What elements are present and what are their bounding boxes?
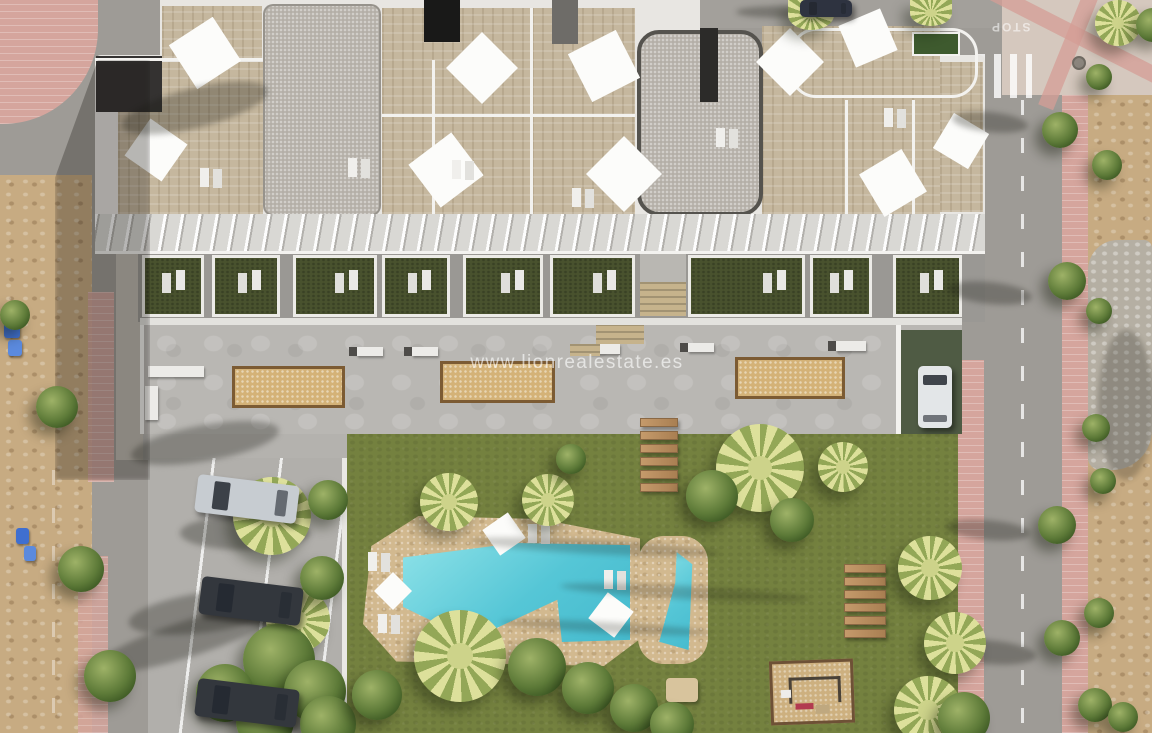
podium-edge	[140, 318, 962, 325]
recycling-bin	[8, 340, 22, 356]
palm-tree	[1095, 0, 1141, 46]
terrain-shadow	[1098, 330, 1152, 480]
wooden-step	[640, 483, 678, 492]
aerial-development-render: STOP	[0, 0, 1152, 733]
shrub	[36, 386, 78, 428]
stair-shaft-roof	[700, 28, 718, 102]
sun-lounger	[378, 614, 387, 633]
shrub	[1090, 468, 1116, 494]
bush	[770, 498, 814, 542]
gravel-roof	[263, 4, 381, 216]
bench	[688, 343, 714, 352]
road-center-line	[1021, 100, 1024, 733]
wooden-step	[640, 418, 678, 427]
shrub	[58, 546, 104, 592]
wooden-step	[640, 444, 678, 453]
bench	[836, 341, 866, 351]
bush	[562, 662, 614, 714]
palm-tree	[898, 536, 962, 600]
roof-railing	[382, 114, 635, 117]
play-table	[781, 690, 791, 698]
swing-frame	[788, 676, 840, 681]
palm-tree	[420, 473, 478, 531]
stair-shaft-roof	[424, 0, 460, 42]
watermark-text: www.lionrealestate.es	[417, 352, 737, 374]
sun-lounger	[716, 128, 725, 147]
private-garden-terrace	[142, 255, 204, 317]
stop-road-marking: STOP	[990, 20, 1030, 34]
shrub	[84, 650, 136, 702]
roof-railing	[845, 100, 848, 214]
bench	[357, 347, 383, 356]
palm-tree	[924, 612, 986, 674]
bush	[352, 670, 402, 720]
bush	[508, 638, 566, 696]
wooden-step	[640, 431, 678, 440]
play-box	[815, 704, 829, 713]
private-garden-terrace	[382, 255, 450, 317]
sun-lounger	[200, 168, 209, 187]
sand-planter	[232, 366, 345, 408]
bush	[686, 470, 738, 522]
recycling-bin	[24, 546, 36, 561]
terrace-steps	[640, 282, 686, 316]
manhole-cover	[1072, 56, 1086, 70]
private-garden-terrace	[212, 255, 280, 317]
private-garden-terrace	[688, 255, 805, 317]
stair-shaft-roof	[552, 0, 578, 44]
bench	[148, 366, 204, 377]
sun-lounger	[348, 158, 357, 177]
street-tree	[1044, 620, 1080, 656]
wooden-step	[844, 616, 886, 625]
shrub	[0, 300, 30, 330]
wooden-step	[844, 564, 886, 573]
palm-tree	[414, 610, 506, 702]
lane-line	[52, 470, 55, 733]
shrub	[1108, 702, 1138, 732]
wooden-step	[844, 577, 886, 586]
palm-tree	[818, 442, 868, 492]
sun-lounger	[572, 188, 581, 207]
crosswalk	[978, 54, 1032, 98]
bush	[308, 480, 348, 520]
shrub	[1086, 298, 1112, 324]
wooden-step	[844, 629, 886, 638]
private-garden-terrace	[293, 255, 377, 317]
wooden-step	[844, 590, 886, 599]
garden-pergola	[666, 678, 698, 702]
pergola-canopy-band	[95, 214, 985, 254]
shrub	[1082, 414, 1110, 442]
private-garden-terrace	[810, 255, 872, 317]
swing-frame	[837, 676, 841, 702]
playground	[769, 659, 855, 726]
shrub	[1092, 150, 1122, 180]
private-garden-terrace	[550, 255, 635, 317]
palm-tree	[522, 474, 574, 526]
wooden-step	[640, 470, 678, 479]
street-tree	[1042, 112, 1078, 148]
play-bench-red	[795, 703, 813, 710]
sun-lounger	[452, 160, 461, 179]
sun-lounger	[884, 108, 893, 127]
parked-car-white	[918, 366, 952, 428]
private-garden-terrace	[463, 255, 543, 317]
shrub	[1084, 598, 1114, 628]
ramp-wall	[896, 324, 901, 434]
street-tree	[1038, 506, 1076, 544]
sun-lounger	[368, 552, 377, 571]
street-tree	[1048, 262, 1086, 300]
bush	[556, 444, 586, 474]
palm-tree	[910, 0, 952, 26]
plaza-steps	[596, 324, 644, 344]
bush	[300, 556, 344, 600]
sand-planter	[735, 357, 845, 399]
shrub	[1078, 688, 1112, 722]
wooden-step	[844, 603, 886, 612]
shrub	[1086, 64, 1112, 90]
wooden-step	[640, 457, 678, 466]
parked-car-dark	[800, 0, 852, 17]
roof-garden-patch	[912, 32, 960, 56]
recycling-bin	[16, 528, 29, 544]
roof-railing	[530, 8, 533, 214]
